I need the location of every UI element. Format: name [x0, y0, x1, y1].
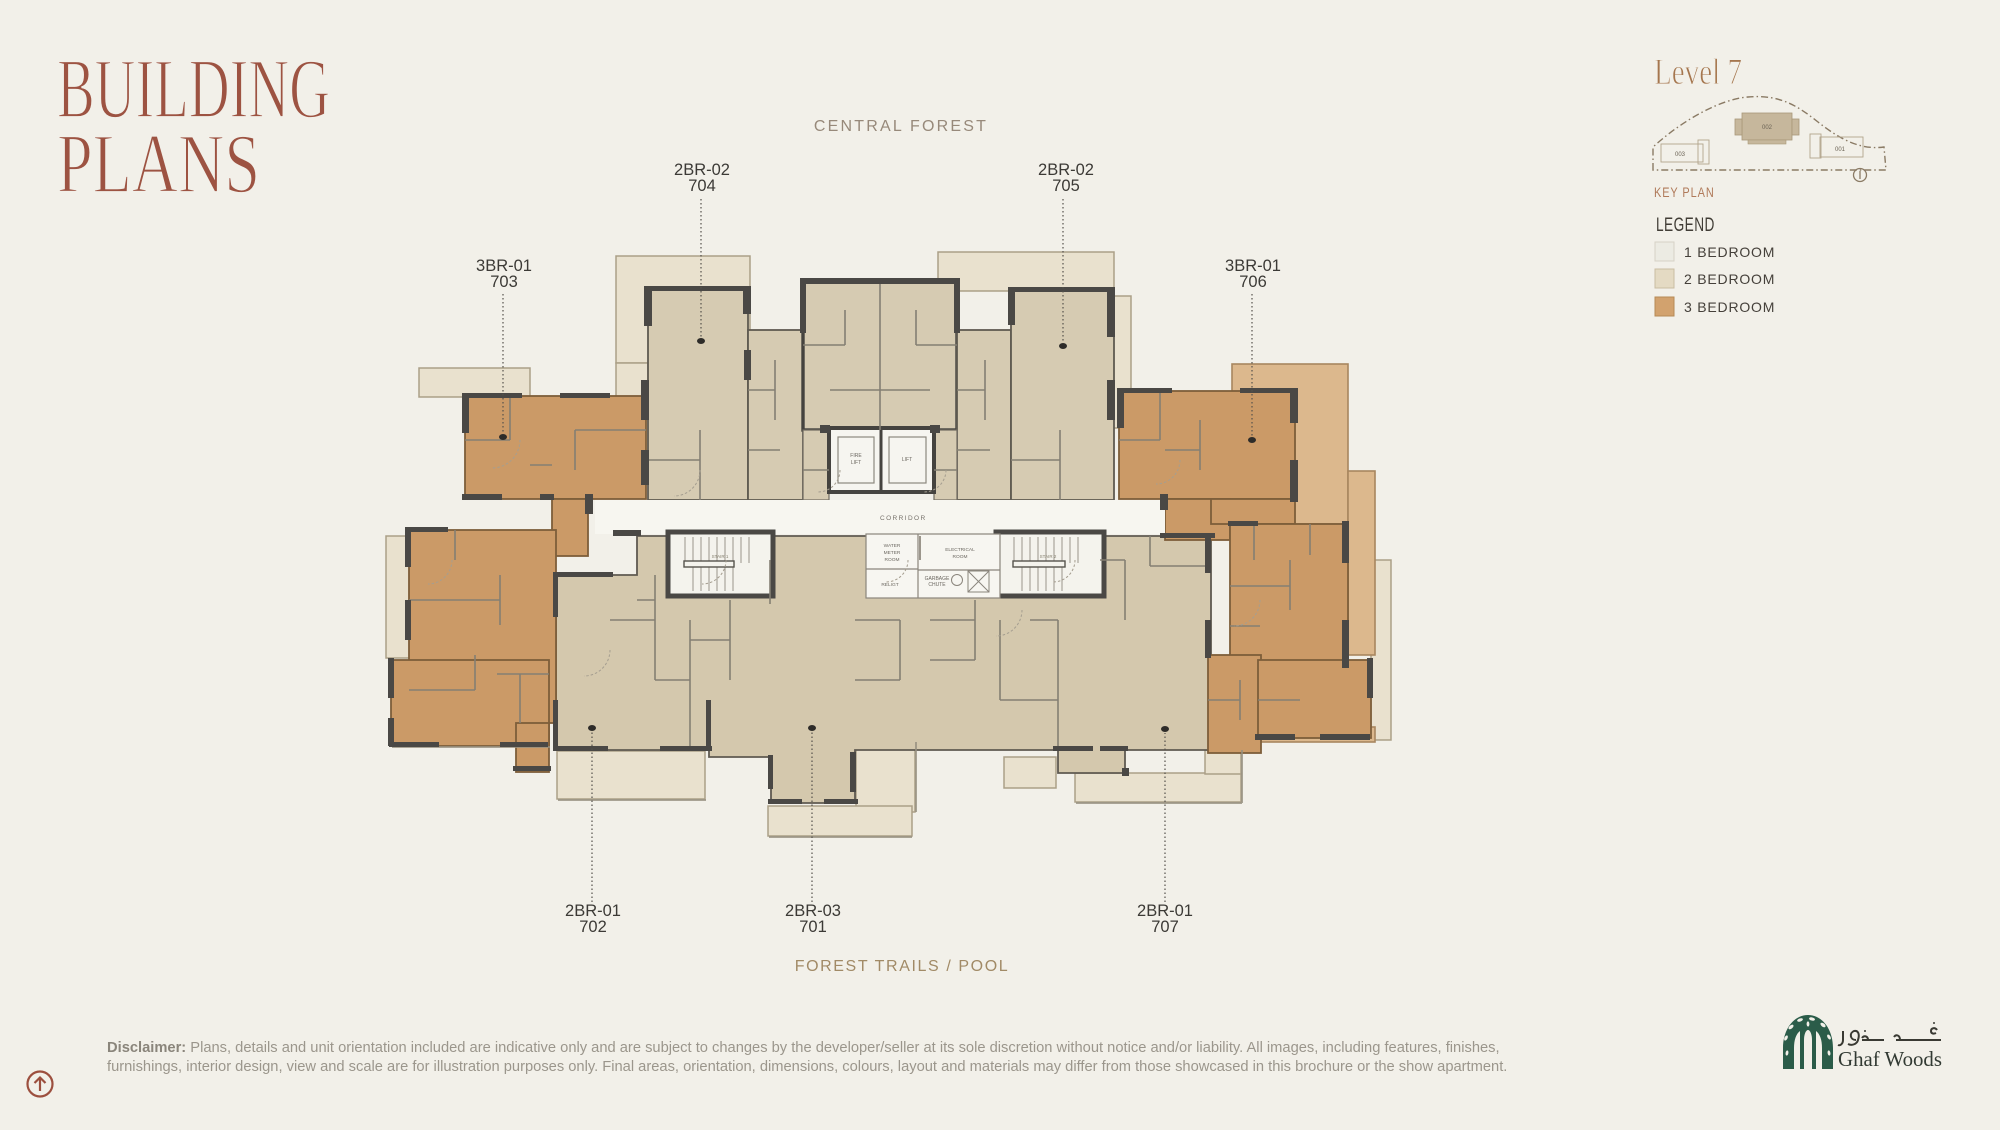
svg-text:706: 706 — [1239, 273, 1267, 291]
svg-text:003: 003 — [1675, 152, 1686, 158]
svg-text:STAIR 2: STAIR 2 — [1040, 554, 1057, 559]
svg-text:LIFT: LIFT — [851, 460, 861, 466]
svg-text:703: 703 — [490, 273, 518, 291]
svg-text:FIRE: FIRE — [850, 453, 862, 459]
svg-text:3 BEDROOM: 3 BEDROOM — [1684, 299, 1775, 315]
svg-text:CENTRAL FOREST: CENTRAL FOREST — [814, 118, 988, 135]
svg-text:002: 002 — [1762, 125, 1773, 131]
svg-text:ELECTRICAL: ELECTRICAL — [945, 547, 975, 553]
svg-text:STAIR 1: STAIR 1 — [712, 554, 729, 559]
svg-text:Ghaf Woods: Ghaf Woods — [1838, 1047, 1942, 1071]
svg-text:001: 001 — [1835, 147, 1846, 153]
svg-text:707: 707 — [1151, 918, 1179, 936]
svg-text:METER: METER — [884, 550, 901, 556]
svg-text:LEGEND: LEGEND — [1656, 214, 1715, 236]
svg-text:KEY PLAN: KEY PLAN — [1654, 185, 1715, 201]
svg-text:CHUTE: CHUTE — [928, 582, 946, 588]
svg-text:ROOM: ROOM — [885, 557, 900, 563]
svg-text:Level 7: Level 7 — [1654, 52, 1742, 93]
svg-text:LIFT: LIFT — [902, 457, 912, 463]
svg-text:2 BEDROOM: 2 BEDROOM — [1684, 271, 1775, 287]
svg-text:Disclaimer: Plans, details and: Disclaimer: Plans, details and unit orie… — [107, 1040, 1500, 1056]
svg-text:WATER: WATER — [884, 543, 901, 549]
svg-text:704: 704 — [688, 177, 716, 195]
svg-text:1 BEDROOM: 1 BEDROOM — [1684, 244, 1775, 260]
svg-text:CORRIDOR: CORRIDOR — [880, 515, 927, 522]
svg-text:ROOM: ROOM — [953, 554, 968, 560]
svg-text:RELIGT: RELIGT — [881, 582, 898, 588]
svg-text:701: 701 — [799, 918, 827, 936]
svg-text:FOREST TRAILS / POOL: FOREST TRAILS / POOL — [795, 958, 1010, 975]
svg-text:702: 702 — [579, 918, 607, 936]
svg-text:furnishings, interior design,: furnishings, interior design, view and s… — [107, 1059, 1507, 1075]
svg-text:PLANS: PLANS — [57, 117, 260, 211]
svg-text:705: 705 — [1052, 177, 1080, 195]
